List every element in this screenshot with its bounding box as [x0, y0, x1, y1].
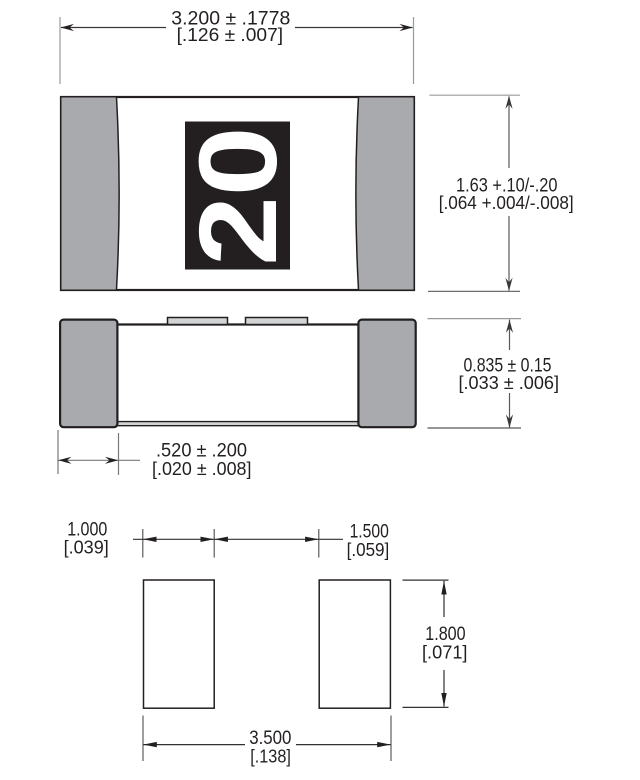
- svg-text:[.033 ± .006]: [.033 ± .006]: [459, 373, 560, 393]
- svg-text:[.020 ± .008]: [.020 ± .008]: [152, 459, 252, 479]
- svg-text:[.126 ± .007]: [.126 ± .007]: [177, 25, 284, 45]
- svg-text:[.059]: [.059]: [347, 540, 390, 560]
- svg-text:20: 20: [176, 126, 299, 265]
- svg-text:[.071]: [.071]: [422, 643, 468, 663]
- svg-text:[.138]: [.138]: [250, 747, 291, 767]
- svg-text:[.039]: [.039]: [64, 537, 109, 557]
- svg-text:[.064 +.004/-.008]: [.064 +.004/-.008]: [439, 193, 574, 213]
